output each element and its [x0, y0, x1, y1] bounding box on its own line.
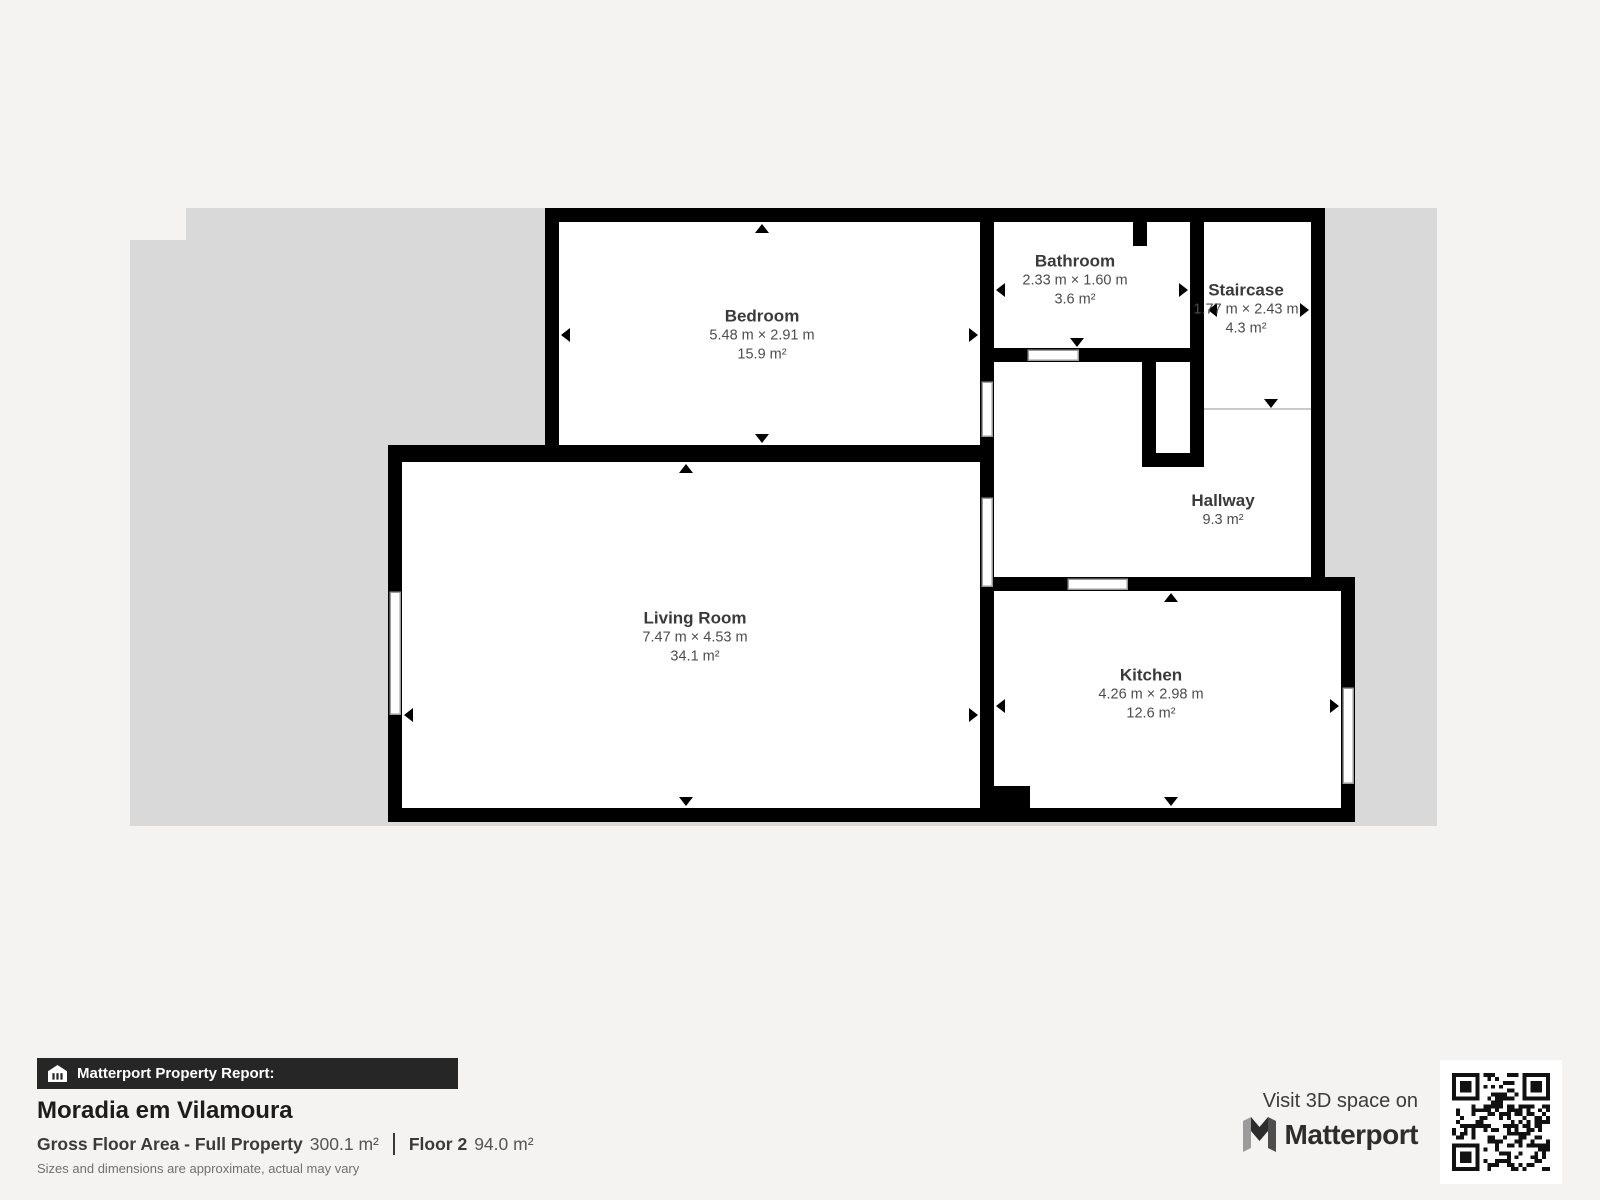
room-label-living-room: Living Room 7.47 m × 4.53 m 34.1 m² — [642, 608, 747, 667]
wall-top — [545, 208, 1325, 222]
room-area: 12.6 m² — [1098, 705, 1203, 724]
room-label-kitchen: Kitchen 4.26 m × 2.98 m 12.6 m² — [1098, 665, 1203, 724]
room-dimensions: 2.33 m × 1.60 m — [1022, 272, 1127, 291]
room-name: Bathroom — [1022, 251, 1127, 272]
room-name: Staircase — [1193, 280, 1298, 301]
gross-floor-area-value: 300.1 m² — [310, 1134, 379, 1155]
matterport-brand-row: Matterport — [1243, 1117, 1418, 1152]
wall-hallway-kitchen — [980, 577, 1355, 591]
room-dimensions: 1.77 m × 2.43 m — [1193, 301, 1298, 320]
wall-bedroom-left — [545, 208, 559, 462]
room-name: Living Room — [642, 608, 747, 629]
room-area: 9.3 m² — [1191, 511, 1254, 530]
wall-bathroom-notch — [1133, 208, 1147, 246]
living-left-window — [390, 592, 400, 714]
floor-plan — [0, 0, 1600, 1200]
room-dimensions: 4.26 m × 2.98 m — [1098, 686, 1203, 705]
wall-bottom-step — [988, 786, 1030, 810]
hallway-kitchen-door — [1068, 579, 1127, 589]
room-dimensions: 7.47 m × 4.53 m — [642, 629, 747, 648]
room-area: 15.9 m² — [709, 346, 814, 365]
house-icon — [48, 1065, 67, 1082]
kitchen-right-window — [1343, 688, 1353, 783]
floor-area-value: 94.0 m² — [474, 1134, 533, 1155]
property-name: Moradia em Vilamoura — [37, 1097, 293, 1125]
living-hallway-door — [982, 498, 992, 586]
room-label-staircase: Staircase 1.77 m × 2.43 m 4.3 m² — [1193, 280, 1298, 339]
wall-bedroom-living — [388, 445, 994, 462]
room-area: 4.3 m² — [1193, 320, 1298, 339]
wall-bathroom-bottom — [980, 348, 1204, 362]
room-dimensions: 5.48 m × 2.91 m — [709, 327, 814, 346]
wall-closet-left — [1142, 348, 1156, 467]
hallway-upper-door — [982, 382, 992, 436]
report-header-label: Matterport Property Report: — [77, 1065, 275, 1082]
room-area: 34.1 m² — [642, 648, 747, 667]
room-label-hallway: Hallway 9.3 m² — [1191, 490, 1254, 530]
disclaimer-text: Sizes and dimensions are approximate, ac… — [37, 1161, 359, 1176]
report-header-bar: Matterport Property Report: — [37, 1058, 458, 1089]
floor-plan-report-page: Bedroom 5.48 m × 2.91 m 15.9 m² Bathroom… — [0, 0, 1600, 1200]
room-name: Bedroom — [709, 306, 814, 327]
metrics-separator — [393, 1133, 395, 1155]
matterport-brand-name: Matterport — [1285, 1119, 1418, 1151]
gross-floor-area-label: Gross Floor Area - Full Property — [37, 1134, 303, 1155]
wall-right-upper — [1311, 208, 1325, 591]
floor-area-metrics: Gross Floor Area - Full Property 300.1 m… — [37, 1133, 534, 1155]
room-label-bedroom: Bedroom 5.48 m × 2.91 m 15.9 m² — [709, 306, 814, 365]
room-name: Hallway — [1191, 490, 1254, 511]
wall-bottom — [388, 808, 1355, 822]
room-name: Kitchen — [1098, 665, 1203, 686]
floor-label: Floor 2 — [409, 1134, 467, 1155]
room-area: 3.6 m² — [1022, 291, 1127, 310]
matterport-logo-icon — [1243, 1117, 1276, 1152]
qr-code — [1440, 1060, 1562, 1184]
room-label-bathroom: Bathroom 2.33 m × 1.60 m 3.6 m² — [1022, 251, 1127, 310]
bathroom-door — [1028, 350, 1078, 360]
visit-3d-text: Visit 3D space on — [1263, 1090, 1418, 1113]
